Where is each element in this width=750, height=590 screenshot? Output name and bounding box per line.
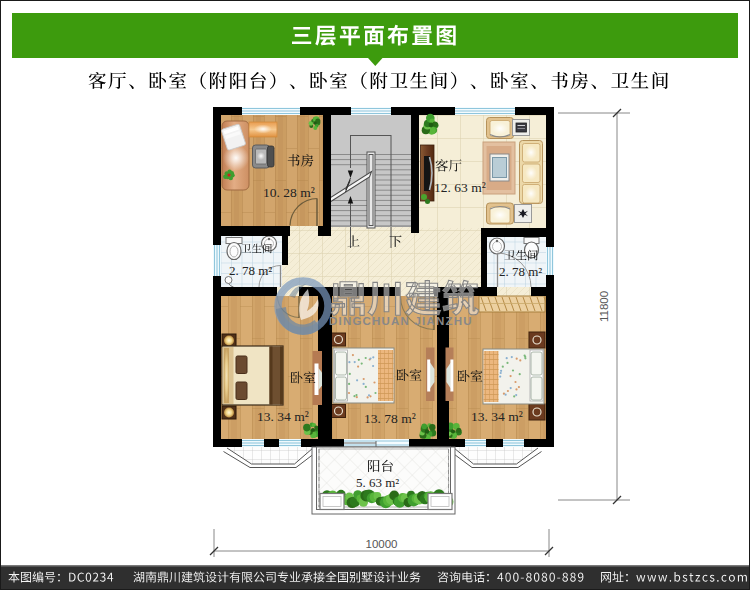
svg-text:10. 28 m²: 10. 28 m² — [263, 185, 315, 200]
svg-text:11800: 11800 — [598, 291, 610, 322]
svg-text:13. 34 m²: 13. 34 m² — [257, 409, 309, 424]
svg-text:5. 63 m²: 5. 63 m² — [356, 475, 399, 490]
svg-text:13. 34 m²: 13. 34 m² — [471, 409, 523, 424]
svg-text:13. 78 m²: 13. 78 m² — [364, 411, 416, 426]
svg-text:DINGCHUAN JIANZHU: DINGCHUAN JIANZHU — [329, 315, 473, 327]
svg-text:2. 78 m²: 2. 78 m² — [229, 263, 272, 278]
svg-text:2. 78 m²: 2. 78 m² — [499, 264, 542, 279]
svg-text:12. 63 m²: 12. 63 m² — [434, 180, 486, 195]
svg-text:10000: 10000 — [366, 538, 398, 550]
